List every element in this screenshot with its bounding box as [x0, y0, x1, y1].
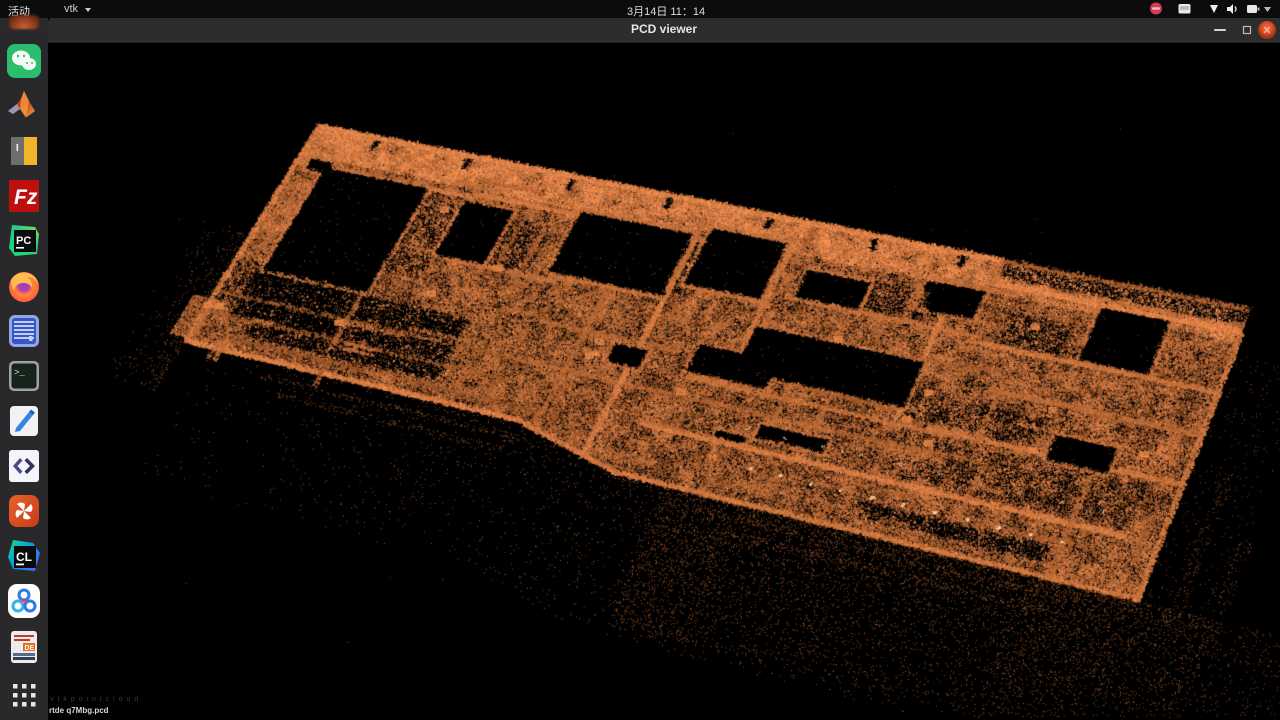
svg-text:CL: CL	[16, 550, 32, 564]
svg-text:>_: >_	[14, 368, 25, 378]
svg-text:DE: DE	[25, 645, 35, 652]
svg-text:Fz: Fz	[14, 186, 38, 209]
svg-text:PC: PC	[16, 235, 31, 247]
